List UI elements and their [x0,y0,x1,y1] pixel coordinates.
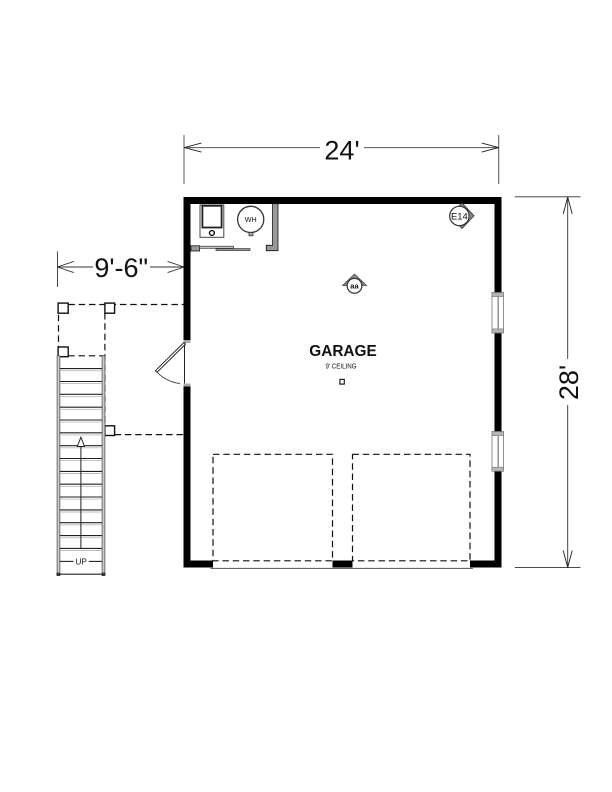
svg-text:WH: WH [245,215,257,224]
svg-text:9' CEILING: 9' CEILING [326,361,357,370]
svg-text:28': 28' [554,365,584,400]
svg-text:24': 24' [324,136,359,166]
svg-text:UP: UP [76,557,88,566]
svg-text:aa: aa [350,281,359,290]
svg-text:E14: E14 [451,211,468,222]
svg-text:GARAGE: GARAGE [309,343,377,360]
svg-text:9'-6": 9'-6" [94,253,148,283]
